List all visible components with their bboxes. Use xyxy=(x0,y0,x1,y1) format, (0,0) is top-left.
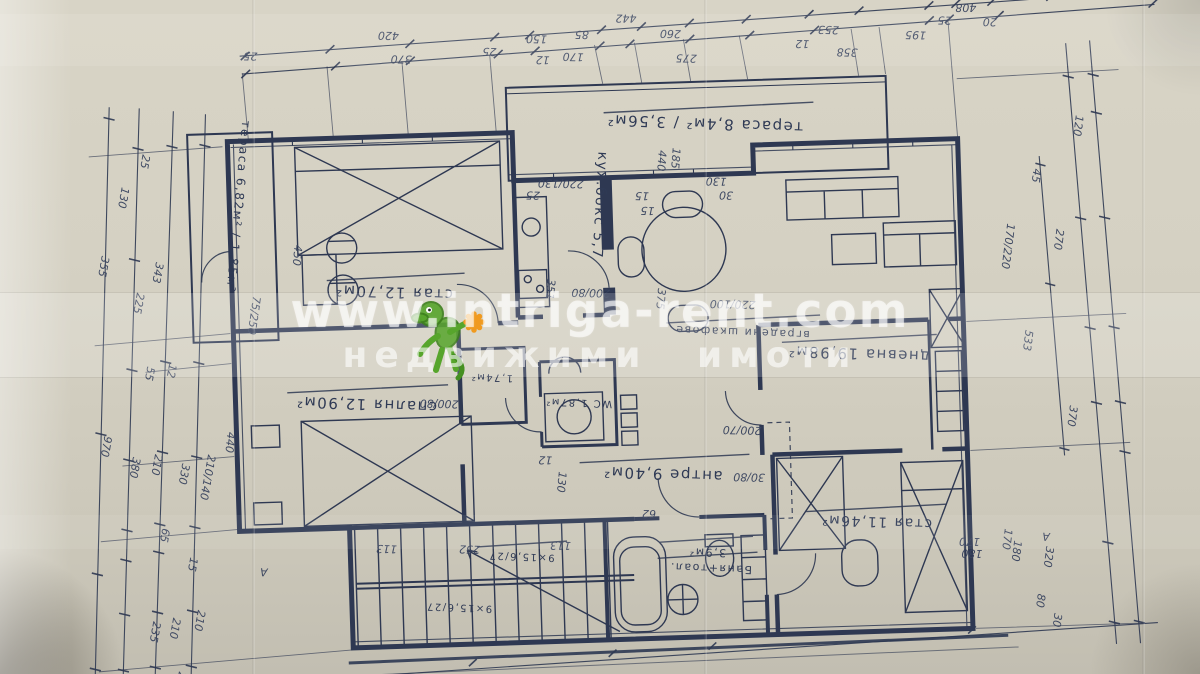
dimension-label: 30/80 xyxy=(733,470,765,484)
dimension-label: 442 xyxy=(616,12,637,25)
bedroom-left-label: спалня 12,90м² xyxy=(295,393,437,416)
dimension-label: 440 xyxy=(223,431,238,453)
dimension-label: 320 xyxy=(1041,546,1057,568)
dimension-label: 235 xyxy=(147,621,164,644)
mascot-figure xyxy=(412,302,471,378)
dimension-label: 30 xyxy=(719,188,733,201)
dimension-label: 62 xyxy=(642,507,656,520)
dimension-label: 12 xyxy=(795,37,809,50)
dimension-label: 15 xyxy=(635,189,649,202)
dimension-label: 210 xyxy=(148,453,165,476)
dimension-label: 55 xyxy=(142,366,157,382)
dimension-label: 370 xyxy=(1064,405,1080,427)
dimension-label: 195 xyxy=(905,28,926,41)
dimension-label: 351 xyxy=(543,278,558,300)
dimension-label: 85 xyxy=(575,28,589,41)
dimension-label: 12 xyxy=(536,53,550,66)
stairs xyxy=(355,521,637,646)
dimension-label: 113 xyxy=(376,542,397,555)
dimension-label: 970 xyxy=(98,435,115,458)
dimension-label: 170/220 xyxy=(999,223,1018,270)
dimension-label: 25 xyxy=(526,188,540,201)
room-bottom-right-label: стая 11,46м² xyxy=(820,511,932,531)
dimension-label: 200/80 xyxy=(420,397,459,411)
bath-label: Баня+тоал. xyxy=(669,560,752,576)
dimension-label: 440 xyxy=(654,150,669,172)
dimension-label: 65 xyxy=(157,527,172,543)
dimension-label: 450 xyxy=(290,244,305,266)
dimension-label: 343 xyxy=(149,261,166,284)
blueprint-photo: тераса 8,4м² / 3,56м² тераса 6,82м² / 1,… xyxy=(0,0,1200,674)
dimension-label: 45 xyxy=(1029,168,1044,184)
dimension-label: 220/100 xyxy=(710,297,756,311)
bath-area-label: 3,9м² xyxy=(688,545,726,559)
dimension-label: 185 xyxy=(668,147,683,169)
dimension-label: 130 xyxy=(115,186,132,209)
dimension-label: 210 xyxy=(191,609,208,632)
floor-plan-drawing: тераса 8,4м² / 3,56м² тераса 6,82м² / 1,… xyxy=(0,0,1200,674)
dimension-label: 375 xyxy=(653,288,668,310)
dimension-label: 200/70 xyxy=(723,423,762,437)
intriga-mascot-logo xyxy=(398,292,493,387)
dimension-label: 15 xyxy=(185,556,200,572)
dimension-label: 30 xyxy=(1050,612,1065,628)
dimension-label: 533 xyxy=(1020,329,1036,351)
dimension-label: А xyxy=(260,565,269,578)
orange-star-icon xyxy=(466,314,482,330)
living-room-label: дневна 19,98м² xyxy=(787,342,931,365)
dimension-label: 180 xyxy=(961,547,982,560)
dimension-label: 220/130 xyxy=(538,176,584,190)
dimension-label: 20 xyxy=(983,15,997,28)
dimension-label: 225 xyxy=(130,292,147,315)
dimension-label: 15 xyxy=(640,204,654,217)
dimension-label: 420 xyxy=(378,29,399,42)
terrace-top-label: тераса 8,4м² / 3,56м² xyxy=(606,111,803,137)
dimension-label: А xyxy=(1042,530,1051,543)
stairs-upper-label: 9×15,6/27 xyxy=(488,549,555,563)
dimension-label: 408 xyxy=(955,1,976,14)
dimension-label: 170 xyxy=(999,528,1015,550)
dimension-label: 120 xyxy=(1070,115,1086,137)
dimension-label: 358 xyxy=(837,45,858,58)
dimension-label: 170 xyxy=(959,535,980,548)
dimension-label: 260 xyxy=(660,27,681,40)
dimension-label: 253 xyxy=(818,23,839,36)
dimension-label: 275 xyxy=(676,51,697,64)
dimension-label: 150 xyxy=(526,32,547,45)
dimension-label: 12 xyxy=(538,453,552,466)
dimension-label: 210 xyxy=(167,617,184,640)
dimension-label: 113 xyxy=(550,539,571,552)
dimension-label: 210/140 xyxy=(197,454,218,501)
stairs-lower-label: 9×15,6/27 xyxy=(425,600,492,614)
hall-label: антре 9,40м² xyxy=(602,463,723,486)
dimension-label: 25 xyxy=(137,154,152,170)
dimension-label: 270 xyxy=(1051,228,1067,250)
dimension-label: 80 xyxy=(1033,593,1048,609)
dimension-label: 170 xyxy=(563,50,584,63)
dimension-label: 200/80 xyxy=(571,286,610,300)
dimension-label: 355 xyxy=(95,255,112,278)
dimension-label: 12 xyxy=(164,363,179,379)
dimension-label: 25 xyxy=(482,45,496,58)
dimension-label: 130 xyxy=(706,174,727,187)
dimension-label: 252 xyxy=(459,542,480,555)
dimension-label: 130 xyxy=(554,471,569,493)
dimension-label: 370 xyxy=(391,52,412,65)
dimension-label: 25 xyxy=(938,13,952,26)
dimension-label: 25 xyxy=(243,49,257,62)
dimension-label: 330 xyxy=(176,463,193,486)
